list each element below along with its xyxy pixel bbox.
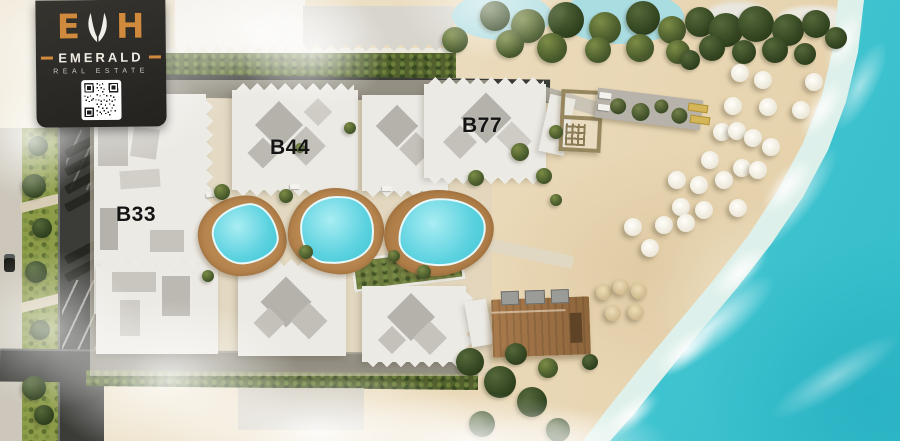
brand-tagline: REAL ESTATE [53,67,149,75]
beach-umbrella [749,161,767,179]
label-b44: B44 [270,136,310,160]
beach-umbrella [668,171,686,189]
beach-umbrella [624,218,642,236]
beach-umbrella [605,305,621,321]
beach-umbrella [724,97,742,115]
label-b77: B77 [462,114,502,138]
label-b33: B33 [116,203,156,227]
beach-umbrella [759,98,777,116]
beach-umbrella [655,216,673,234]
beach-umbrella [701,151,719,169]
resort-master-plan-render: B33 B44 B77 E H EMERALD REAL ESTATE [0,0,900,441]
brand-dash-right [149,55,161,58]
beach-umbrella [695,201,713,219]
beach-umbrella [641,239,659,257]
beach-umbrella [754,71,772,89]
logo-letter-e: E [57,10,81,44]
beach-umbrella [677,214,695,232]
logo-m-mark [83,9,113,45]
beach-umbrella [744,129,762,147]
beach-umbrella [715,171,733,189]
beach-umbrella [628,304,644,320]
brand-name-row: EMERALD [41,49,160,65]
beach-umbrella [792,101,810,119]
beach-umbrella [729,199,747,217]
beach-umbrella [613,279,629,295]
qr-code [81,80,121,120]
logo-letter-h: H [116,10,145,44]
beach-umbrella [762,138,780,156]
brand-name: EMERALD [58,50,143,66]
beach-umbrella [731,64,749,82]
beach-umbrella [596,284,612,300]
logo-monogram: E H [57,7,145,48]
beach-umbrella [805,73,823,91]
brand-logo-panel: E H EMERALD REAL ESTATE [35,0,166,128]
beach-umbrella [631,283,647,299]
beach-umbrella [690,176,708,194]
brand-dash-left [41,56,53,59]
